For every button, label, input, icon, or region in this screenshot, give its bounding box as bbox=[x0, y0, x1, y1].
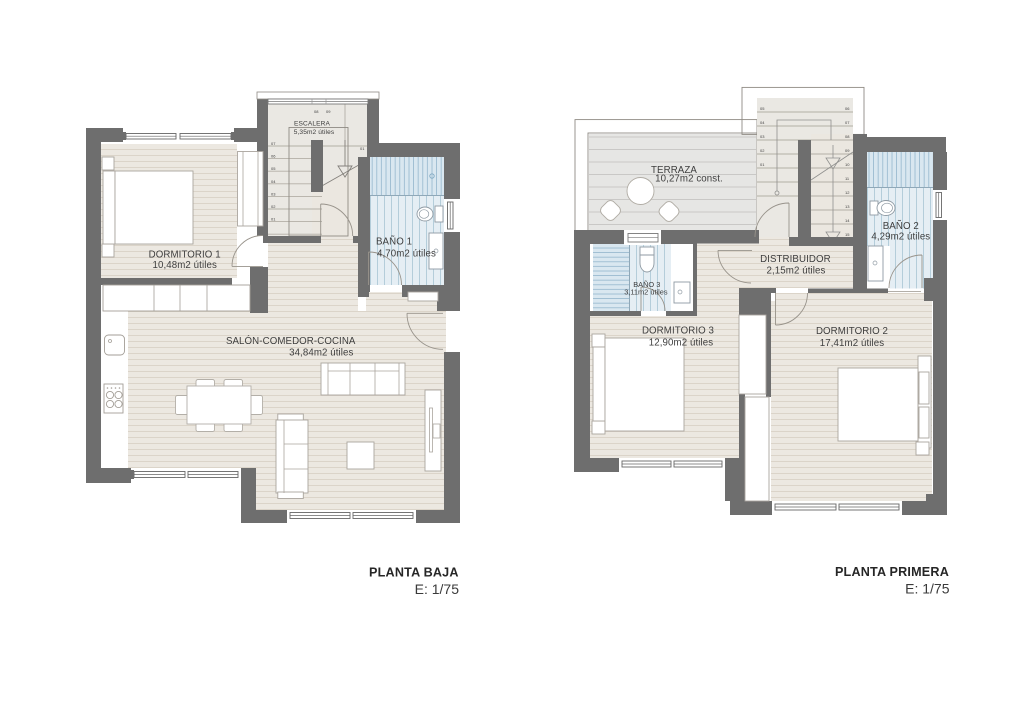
svg-text:07: 07 bbox=[271, 141, 276, 146]
svg-text:06: 06 bbox=[845, 106, 850, 111]
svg-text:07: 07 bbox=[845, 120, 850, 125]
svg-text:12,90m2 útiles: 12,90m2 útiles bbox=[649, 338, 713, 349]
svg-text:01: 01 bbox=[271, 217, 276, 222]
svg-text:13: 13 bbox=[845, 204, 850, 209]
svg-text:DORMITORIO 2: DORMITORIO 2 bbox=[816, 326, 888, 337]
svg-text:08: 08 bbox=[845, 134, 850, 139]
svg-text:DISTRIBUIDOR: DISTRIBUIDOR bbox=[760, 254, 831, 265]
svg-text:SALÓN-COMEDOR-COCINA: SALÓN-COMEDOR-COCINA bbox=[226, 336, 356, 347]
svg-text:03: 03 bbox=[760, 134, 765, 139]
svg-text:17,41m2 útiles: 17,41m2 útiles bbox=[820, 338, 884, 349]
svg-text:01: 01 bbox=[360, 146, 365, 151]
svg-text:01: 01 bbox=[760, 162, 765, 167]
svg-text:09: 09 bbox=[845, 148, 850, 153]
svg-text:08: 08 bbox=[314, 109, 319, 114]
svg-text:PLANTA PRIMERA: PLANTA PRIMERA bbox=[835, 565, 949, 579]
svg-text:10,27m2 const.: 10,27m2 const. bbox=[655, 174, 723, 185]
svg-text:04: 04 bbox=[271, 179, 276, 184]
svg-text:05: 05 bbox=[271, 166, 276, 171]
svg-text:09: 09 bbox=[326, 109, 331, 114]
svg-text:DORMITORIO 1: DORMITORIO 1 bbox=[149, 249, 221, 260]
svg-text:06: 06 bbox=[271, 154, 276, 159]
svg-text:ESCALERA: ESCALERA bbox=[294, 120, 330, 127]
svg-text:2,15m2 útiles: 2,15m2 útiles bbox=[767, 265, 826, 276]
svg-text:03: 03 bbox=[271, 191, 276, 196]
svg-text:34,84m2 útiles: 34,84m2 útiles bbox=[289, 348, 353, 359]
svg-text:DORMITORIO 3: DORMITORIO 3 bbox=[642, 326, 714, 337]
svg-text:3,11m2 útiles: 3,11m2 útiles bbox=[624, 288, 668, 297]
svg-text:E: 1/75: E: 1/75 bbox=[415, 581, 460, 597]
svg-text:PLANTA BAJA: PLANTA BAJA bbox=[369, 566, 459, 580]
svg-text:14: 14 bbox=[845, 218, 850, 223]
svg-text:E: 1/75: E: 1/75 bbox=[905, 581, 950, 597]
svg-text:15: 15 bbox=[845, 232, 850, 237]
svg-text:10,48m2 útiles: 10,48m2 útiles bbox=[152, 260, 216, 271]
svg-text:BAÑO 1: BAÑO 1 bbox=[376, 237, 412, 248]
svg-text:5,35m2 útiles: 5,35m2 útiles bbox=[294, 129, 335, 136]
svg-text:04: 04 bbox=[760, 120, 765, 125]
svg-text:4,70m2 útiles: 4,70m2 útiles bbox=[377, 249, 436, 260]
svg-text:05: 05 bbox=[760, 106, 765, 111]
svg-text:BAÑO 2: BAÑO 2 bbox=[883, 221, 919, 232]
svg-text:02: 02 bbox=[760, 148, 765, 153]
svg-text:12: 12 bbox=[845, 190, 850, 195]
svg-text:02: 02 bbox=[271, 204, 276, 209]
svg-text:10: 10 bbox=[845, 162, 850, 167]
svg-text:4,29m2 útiles: 4,29m2 útiles bbox=[871, 232, 930, 243]
